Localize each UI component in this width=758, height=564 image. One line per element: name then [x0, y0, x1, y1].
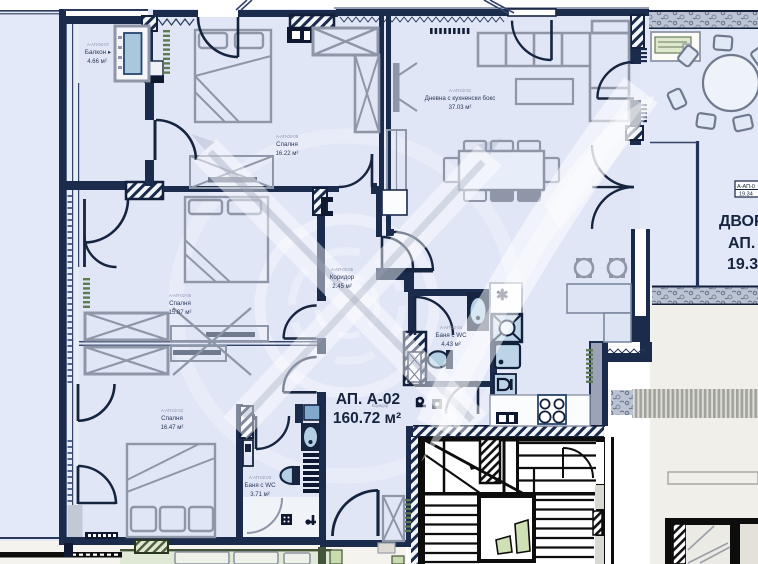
svg-text:4.43 м²: 4.43 м² [441, 342, 460, 348]
svg-text:4.66 м²: 4.66 м² [87, 59, 106, 65]
svg-text:3.71 м²: 3.71 м² [250, 492, 269, 498]
svg-text:А-АП-02-05: А-АП-02-05 [169, 293, 192, 298]
svg-text:Дневна с кухненски бокс: Дневна с кухненски бокс [425, 95, 496, 102]
svg-text:Коридор: Коридор [372, 403, 389, 408]
svg-text:А-АП-02-02: А-АП-02-02 [161, 408, 184, 413]
svg-text:2.45 м²: 2.45 м² [332, 284, 351, 290]
svg-text:АП. А-02: АП. А-02 [336, 391, 400, 408]
svg-text:АП. А: АП. А [728, 235, 758, 252]
svg-text:А-АП-02-04: А-АП-02-04 [440, 325, 463, 330]
svg-text:19.34: 19.34 [727, 256, 758, 273]
svg-text:160.72 м²: 160.72 м² [333, 410, 401, 427]
svg-text:А-АП-02-03: А-АП-02-03 [249, 475, 272, 480]
svg-text:А-АП-02-06: А-АП-02-06 [331, 267, 354, 272]
svg-text:А-АП-02-08: А-АП-02-08 [276, 134, 299, 139]
svg-text:Спалня: Спалня [161, 415, 183, 422]
svg-text:Коридор: Коридор [330, 274, 355, 281]
svg-text:Баня с WC: Баня с WC [435, 332, 467, 339]
svg-text:А-АП-02-01: А-АП-02-01 [449, 88, 472, 93]
svg-text:ДВОР: ДВОР [719, 213, 758, 230]
svg-text:Балкон ▸: Балкон ▸ [85, 49, 111, 56]
svg-text:16.47 м²: 16.47 м² [161, 425, 184, 431]
svg-text:19.34: 19.34 [739, 192, 753, 198]
svg-text:Спалня: Спалня [169, 300, 191, 307]
svg-text:15.87 м²: 15.87 м² [169, 310, 192, 316]
svg-text:Баня с WC: Баня с WC [244, 482, 276, 489]
svg-text:А-АП-02-07: А-АП-02-07 [87, 42, 110, 47]
svg-text:37.03 м²: 37.03 м² [449, 105, 472, 111]
svg-text:16.22 м²: 16.22 м² [276, 151, 299, 157]
svg-text:Спалня: Спалня [276, 141, 298, 148]
